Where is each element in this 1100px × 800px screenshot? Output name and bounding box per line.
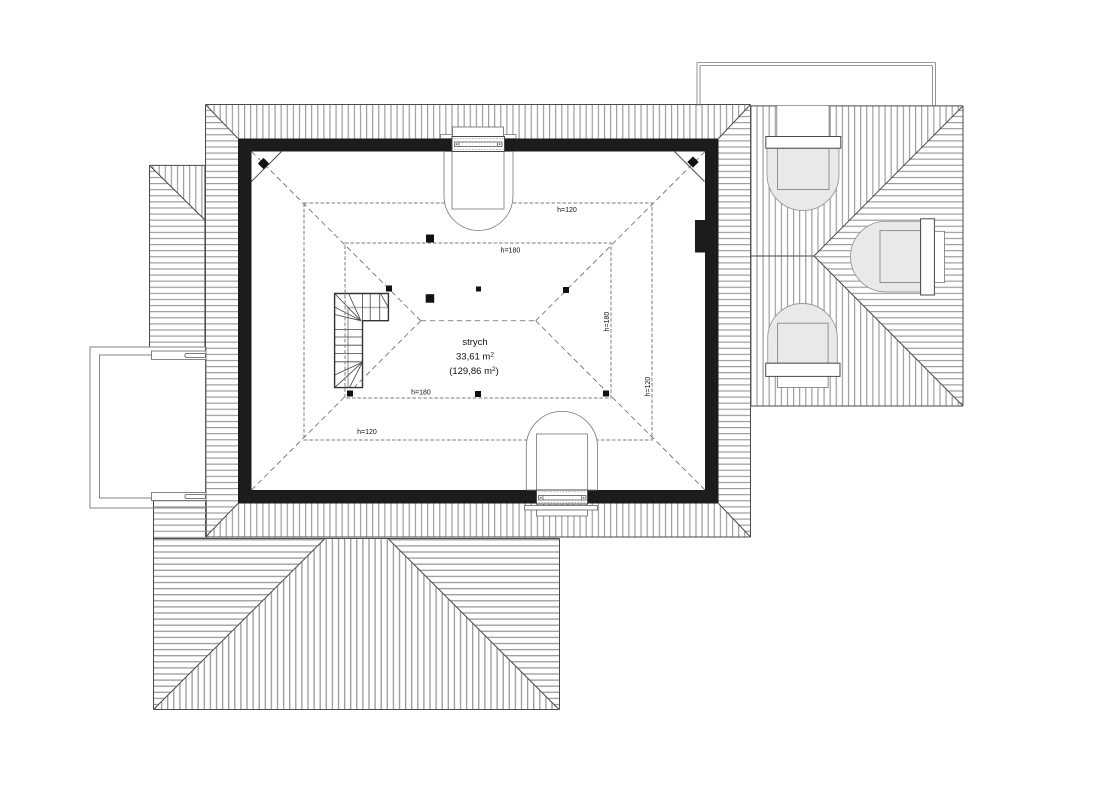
svg-text:(129,86 m2): (129,86 m2): [449, 366, 499, 377]
svg-text:h=120: h=120: [645, 377, 652, 397]
svg-text:h=180: h=180: [501, 248, 521, 255]
svg-text:33,61 m2: 33,61 m2: [456, 352, 494, 363]
svg-text:h=180: h=180: [411, 390, 431, 397]
svg-text:strych: strych: [462, 337, 487, 348]
svg-text:h=120: h=120: [557, 207, 577, 214]
svg-text:h=120: h=120: [357, 429, 377, 436]
svg-text:h=180: h=180: [604, 312, 611, 332]
